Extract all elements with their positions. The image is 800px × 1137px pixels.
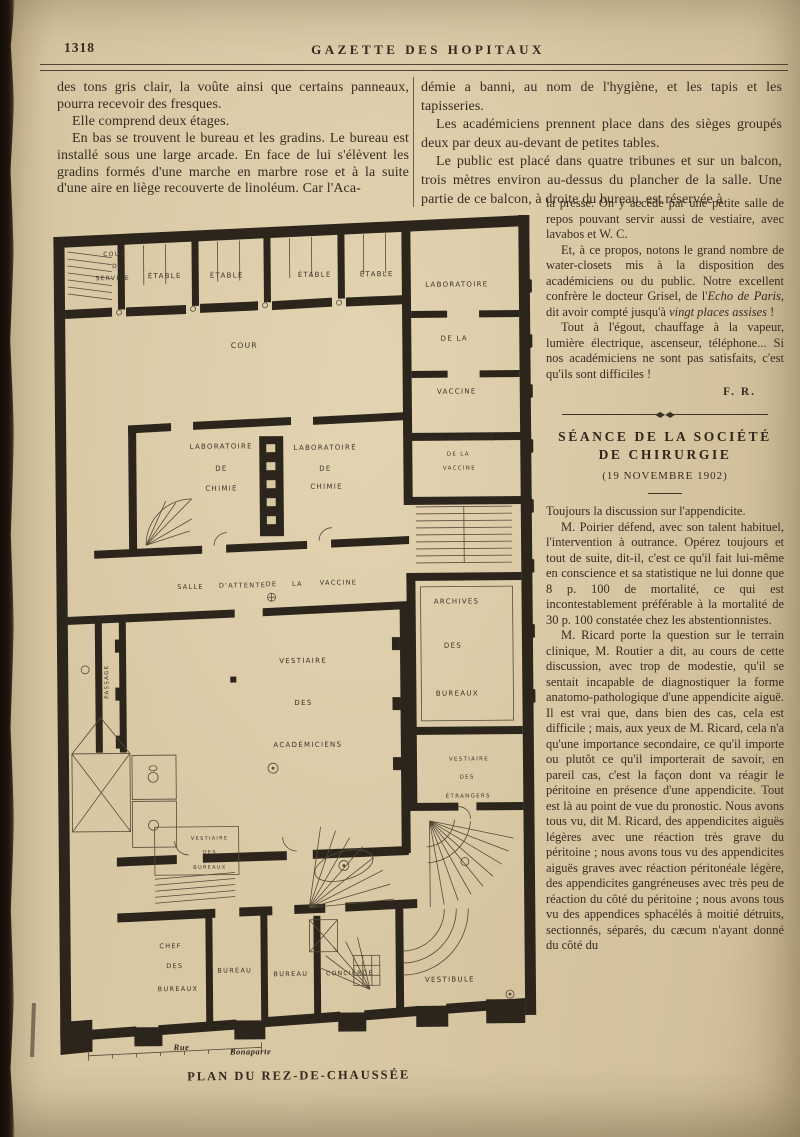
paragraph: Les académiciens prennent place dans des… <box>421 116 782 153</box>
paragraph: Tout à l'égout, chauffage à la vapeur, l… <box>546 320 784 382</box>
plan-caption: PLAN DU REZ-DE-CHAUSSÉE <box>187 1068 410 1085</box>
plan-room-label: COUR <box>103 251 126 258</box>
floor-plan: COURDESERVICEÉTABLEÉTABLEÉTABLEÉTABLECOU… <box>51 206 539 1090</box>
plan-room-label: LABORATOIRE <box>294 443 357 452</box>
plan-room-label: DE LA <box>441 334 468 342</box>
plan-room-label: D'ATTENTE <box>219 581 266 589</box>
plan-room-label: VACCINE <box>437 387 477 395</box>
section-separator: ◆◆ <box>546 410 784 420</box>
engraver-mark <box>30 1003 36 1057</box>
paragraph: En bas se trouvent le bureau et les grad… <box>57 131 409 199</box>
plan-room-label: DE <box>112 263 123 270</box>
journal-title: GAZETTE DES HOPITAUX <box>311 42 545 58</box>
paragraph: démie a banni, au nom de l'hygiène, et l… <box>421 79 782 116</box>
plan-room-label: CHEF DE SERVICE <box>426 436 495 443</box>
plan-room-label: BUREAUX <box>436 689 479 697</box>
paragraph: des tons gris clair, la voûte ainsi que … <box>57 80 409 114</box>
plan-room-label: DES <box>294 699 312 707</box>
plan-room-label: DES <box>166 962 183 970</box>
plan-room-label: CHEF <box>159 942 182 950</box>
plan-room-label: VESTIBULE <box>425 975 475 983</box>
diamond-ornament-icon: ◆◆ <box>655 411 675 419</box>
plan-room-label: CHIMIE <box>205 484 238 492</box>
plan-room-label: VACCINE <box>320 578 358 586</box>
plan-room-label: ÉTABLE <box>360 270 394 278</box>
book-binding-torn-edge <box>0 0 15 1137</box>
plan-room-label: DE <box>266 580 278 588</box>
paragraph: Elle comprend deux étages. <box>57 114 409 131</box>
plan-room-label: SALLE <box>177 583 204 591</box>
plan-room-label: VESTIAIRE <box>279 657 327 665</box>
plan-room-label: Bonaparte <box>230 1046 271 1056</box>
plan-room-label: ACADÉMICIENS <box>273 741 342 750</box>
plan-room-label: BUREAU <box>217 966 252 974</box>
plan-room-label: Rue <box>174 1042 190 1052</box>
section-short-rule <box>648 493 682 494</box>
plan-room-label: DE <box>215 465 227 473</box>
plan-room-label: DES <box>444 642 462 650</box>
plan-room-label: SERVICE <box>96 275 130 282</box>
author-signature: F. R. <box>546 385 784 401</box>
plan-room-label: DES <box>460 774 475 780</box>
plan-room-label: DE <box>319 465 331 473</box>
section-title-line2: DE CHIRURGIE <box>546 446 784 464</box>
plan-room-label: VACCINE <box>443 465 476 471</box>
narrow-paragraphs: la presse. On y accède par une petite sa… <box>546 196 784 382</box>
paragraph: Toujours la discussion sur l'appendicite… <box>546 504 784 520</box>
plan-room-label: DE LA <box>447 451 470 457</box>
paragraph: Et, à ce propos, notons le grand nombre … <box>546 243 784 321</box>
section-paragraphs: Toujours la discussion sur l'appendicite… <box>546 504 784 954</box>
section-title-line1: SÉANCE DE LA SOCIÉTÉ <box>546 428 784 446</box>
plan-room-label: BUREAUX <box>193 865 226 871</box>
plan-room-label: LA <box>292 580 303 588</box>
paragraph: M. Poirier défend, avec son talent habit… <box>546 520 784 629</box>
plan-room-label: COUR <box>231 341 258 350</box>
paragraph: M. Ricard porte la question sur le terra… <box>546 628 784 954</box>
plan-room-label: ÉTABLE <box>148 272 182 280</box>
plan-room-label: DES <box>203 850 217 856</box>
plan-room-label: BUREAUX <box>158 985 199 993</box>
plan-room-label: VESTIAIRE <box>449 756 489 762</box>
column-divider-rule <box>413 77 414 207</box>
plan-room-label: ARCHIVES <box>434 597 480 605</box>
plan-room-label: ÉTRANGERS <box>446 793 491 799</box>
left-text-column: des tons gris clair, la voûte ainsi que … <box>57 80 409 198</box>
plan-room-label: LABORATOIRE <box>425 280 488 289</box>
plan-room-label: ÉTABLE <box>210 271 244 279</box>
plan-room-label: LABORATOIRE <box>190 442 253 451</box>
right-text-column-wide: démie a banni, au nom de l'hygiène, et l… <box>421 79 782 209</box>
right-text-column-narrow: la presse. On y accède par une petite sa… <box>546 196 784 954</box>
plan-room-label: PASSAGE <box>104 664 110 698</box>
header-double-rule <box>40 64 788 71</box>
section-date: (19 NOVEMBRE 1902) <box>546 469 784 485</box>
paragraph: la presse. On y accède par une petite sa… <box>546 196 784 243</box>
plan-room-label: CHIMIE <box>310 483 343 491</box>
plan-room-label: VESTIAIRE <box>191 836 229 842</box>
plan-room-label: BUREAU <box>273 970 308 978</box>
plan-room-label: ÉTABLE <box>298 271 332 279</box>
floor-plan-labels: COURDESERVICEÉTABLEÉTABLEÉTABLEÉTABLECOU… <box>51 206 539 1090</box>
plan-room-label: CONCIERGE <box>326 970 374 977</box>
page-number: 1318 <box>64 40 95 56</box>
